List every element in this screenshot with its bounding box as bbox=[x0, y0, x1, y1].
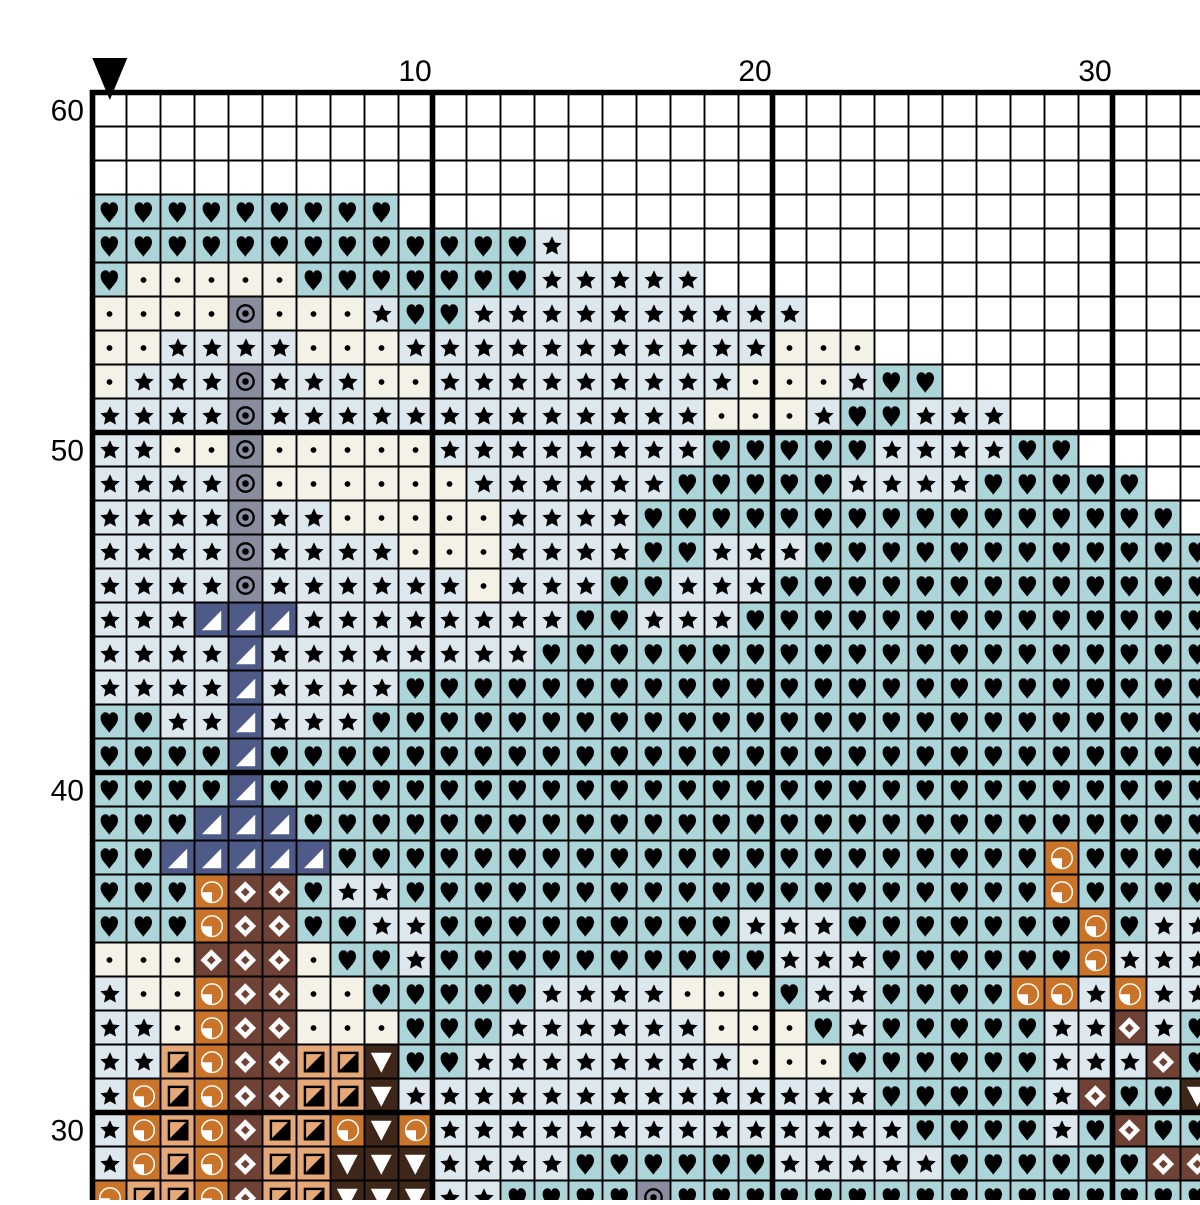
svg-text:10: 10 bbox=[398, 55, 431, 88]
svg-text:60: 60 bbox=[51, 95, 84, 128]
svg-text:20: 20 bbox=[738, 55, 771, 88]
svg-text:30: 30 bbox=[51, 1115, 84, 1148]
svg-text:40: 40 bbox=[51, 775, 84, 808]
svg-text:30: 30 bbox=[1078, 55, 1111, 88]
svg-text:50: 50 bbox=[51, 435, 84, 468]
